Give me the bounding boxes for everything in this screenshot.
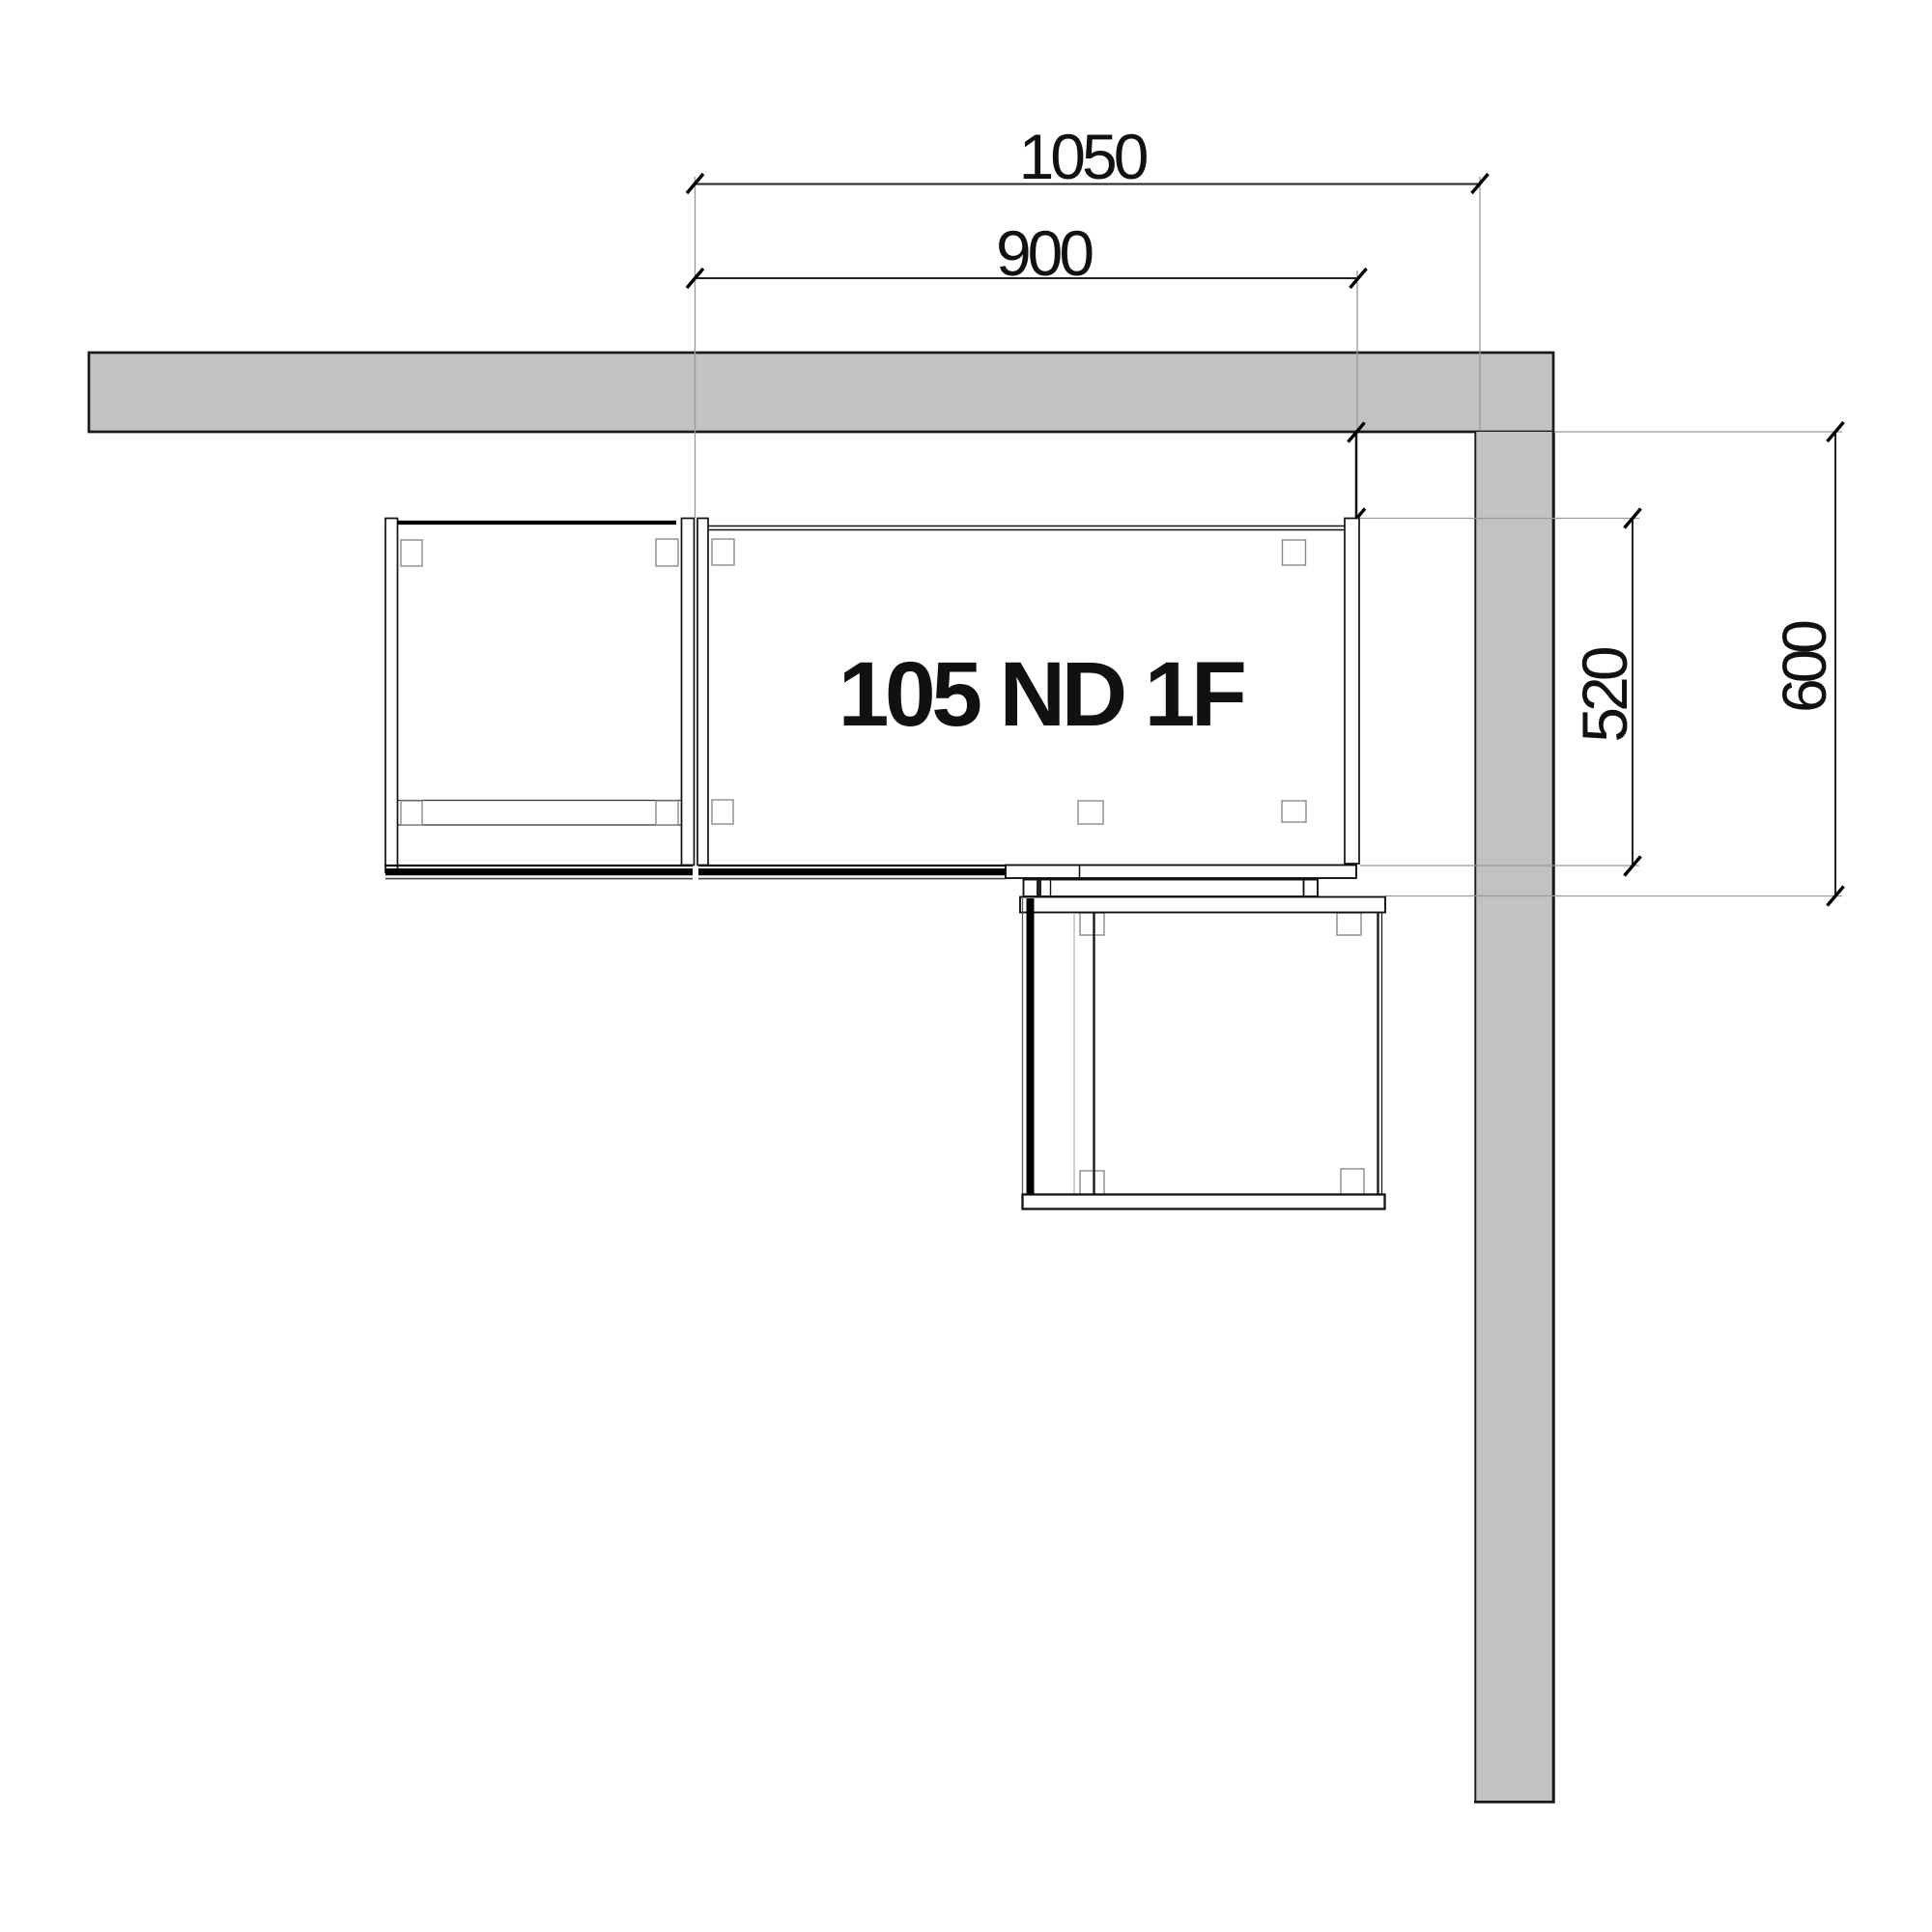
svg-text:600: 600 bbox=[1770, 621, 1839, 713]
svg-text:1050: 1050 bbox=[1019, 121, 1148, 192]
svg-text:105 ND 1F: 105 ND 1F bbox=[838, 643, 1244, 746]
svg-text:900: 900 bbox=[996, 217, 1093, 289]
svg-text:520: 520 bbox=[1569, 647, 1640, 742]
